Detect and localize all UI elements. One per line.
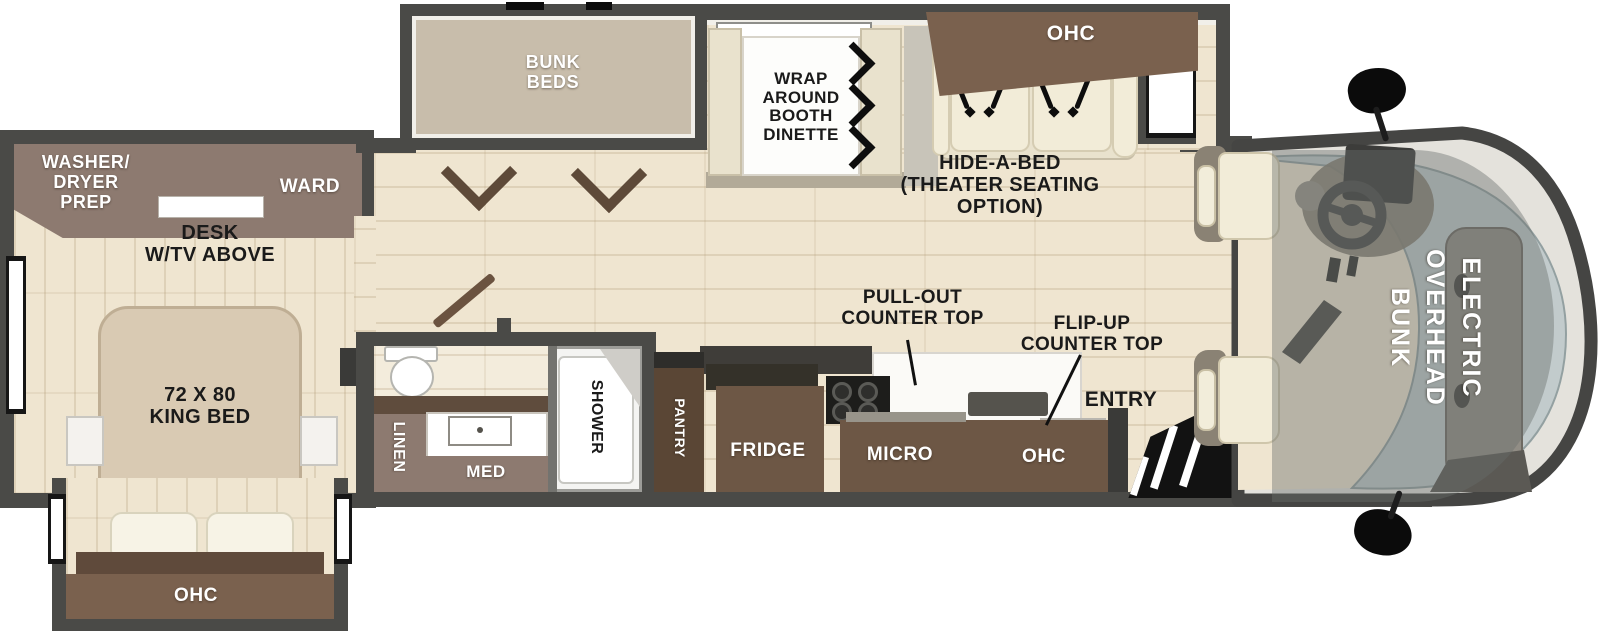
bunk-slide-handle-2 xyxy=(586,2,612,10)
bed-slide-window-right-icon xyxy=(334,494,352,564)
bed-slide-window-left-icon xyxy=(48,494,66,564)
nightstand-left xyxy=(66,416,104,466)
passenger-seat xyxy=(1194,350,1280,446)
counter-appliance-icon xyxy=(968,392,1048,416)
bunk-beds-label: BUNK BEDS xyxy=(478,52,628,92)
bedroom-tv-icon xyxy=(340,348,356,386)
ward-label: WARD xyxy=(262,176,358,197)
bed-slide-bottom-wall xyxy=(52,619,348,631)
bedroom-window-icon xyxy=(6,256,26,414)
med-label: MED xyxy=(446,462,526,481)
linen-label: LINEN xyxy=(391,405,407,489)
fridge-label: FRIDGE xyxy=(712,440,824,461)
bed-ohc-label: OHC xyxy=(146,585,246,606)
desk-label: DESK W/TV ABOVE xyxy=(110,222,310,266)
desk-surface xyxy=(158,196,264,218)
fridge xyxy=(716,386,824,492)
burner-icon xyxy=(858,382,878,402)
shower-label: SHOWER xyxy=(589,362,605,472)
king-bed-label: 72 X 80 KING BED xyxy=(100,384,300,428)
faucet-icon xyxy=(477,427,483,433)
micro-top-strip xyxy=(846,412,966,422)
rv-floorplan: WASHER/ DRYER PREP WARD DESK W/TV ABOVE … xyxy=(0,0,1600,633)
pull-out-counter-label: PULL-OUT COUNTER TOP xyxy=(820,288,1005,330)
toilet-bowl-icon xyxy=(390,356,434,398)
pantry-label: PANTRY xyxy=(671,388,687,468)
seat-cushion xyxy=(1218,152,1280,240)
bunk-slide-handle-1 xyxy=(506,2,544,10)
nightstand-right xyxy=(300,416,338,466)
washer-dryer-label: WASHER/ DRYER PREP xyxy=(16,152,156,212)
kitchen-ohc-label: OHC xyxy=(994,446,1094,467)
seat-cushion xyxy=(1218,356,1280,444)
driver-seat xyxy=(1194,146,1280,242)
seat-headrest xyxy=(1197,369,1216,431)
hall-opening xyxy=(354,216,376,332)
bedroom-top-wall xyxy=(0,130,374,145)
bathroom-top-wall xyxy=(374,332,656,346)
overhead-bunk-label: ELECTRIC OVERHEAD BUNK xyxy=(1376,198,1488,458)
burner-icon xyxy=(832,382,852,402)
seat-headrest xyxy=(1197,165,1216,227)
sofa-ohc-label: OHC xyxy=(1026,22,1116,46)
shower-door-icon xyxy=(548,346,557,492)
micro-label: MICRO xyxy=(850,444,950,465)
hide-a-bed-label: HIDE-A-BED (THEATER SEATING OPTION) xyxy=(880,152,1120,218)
